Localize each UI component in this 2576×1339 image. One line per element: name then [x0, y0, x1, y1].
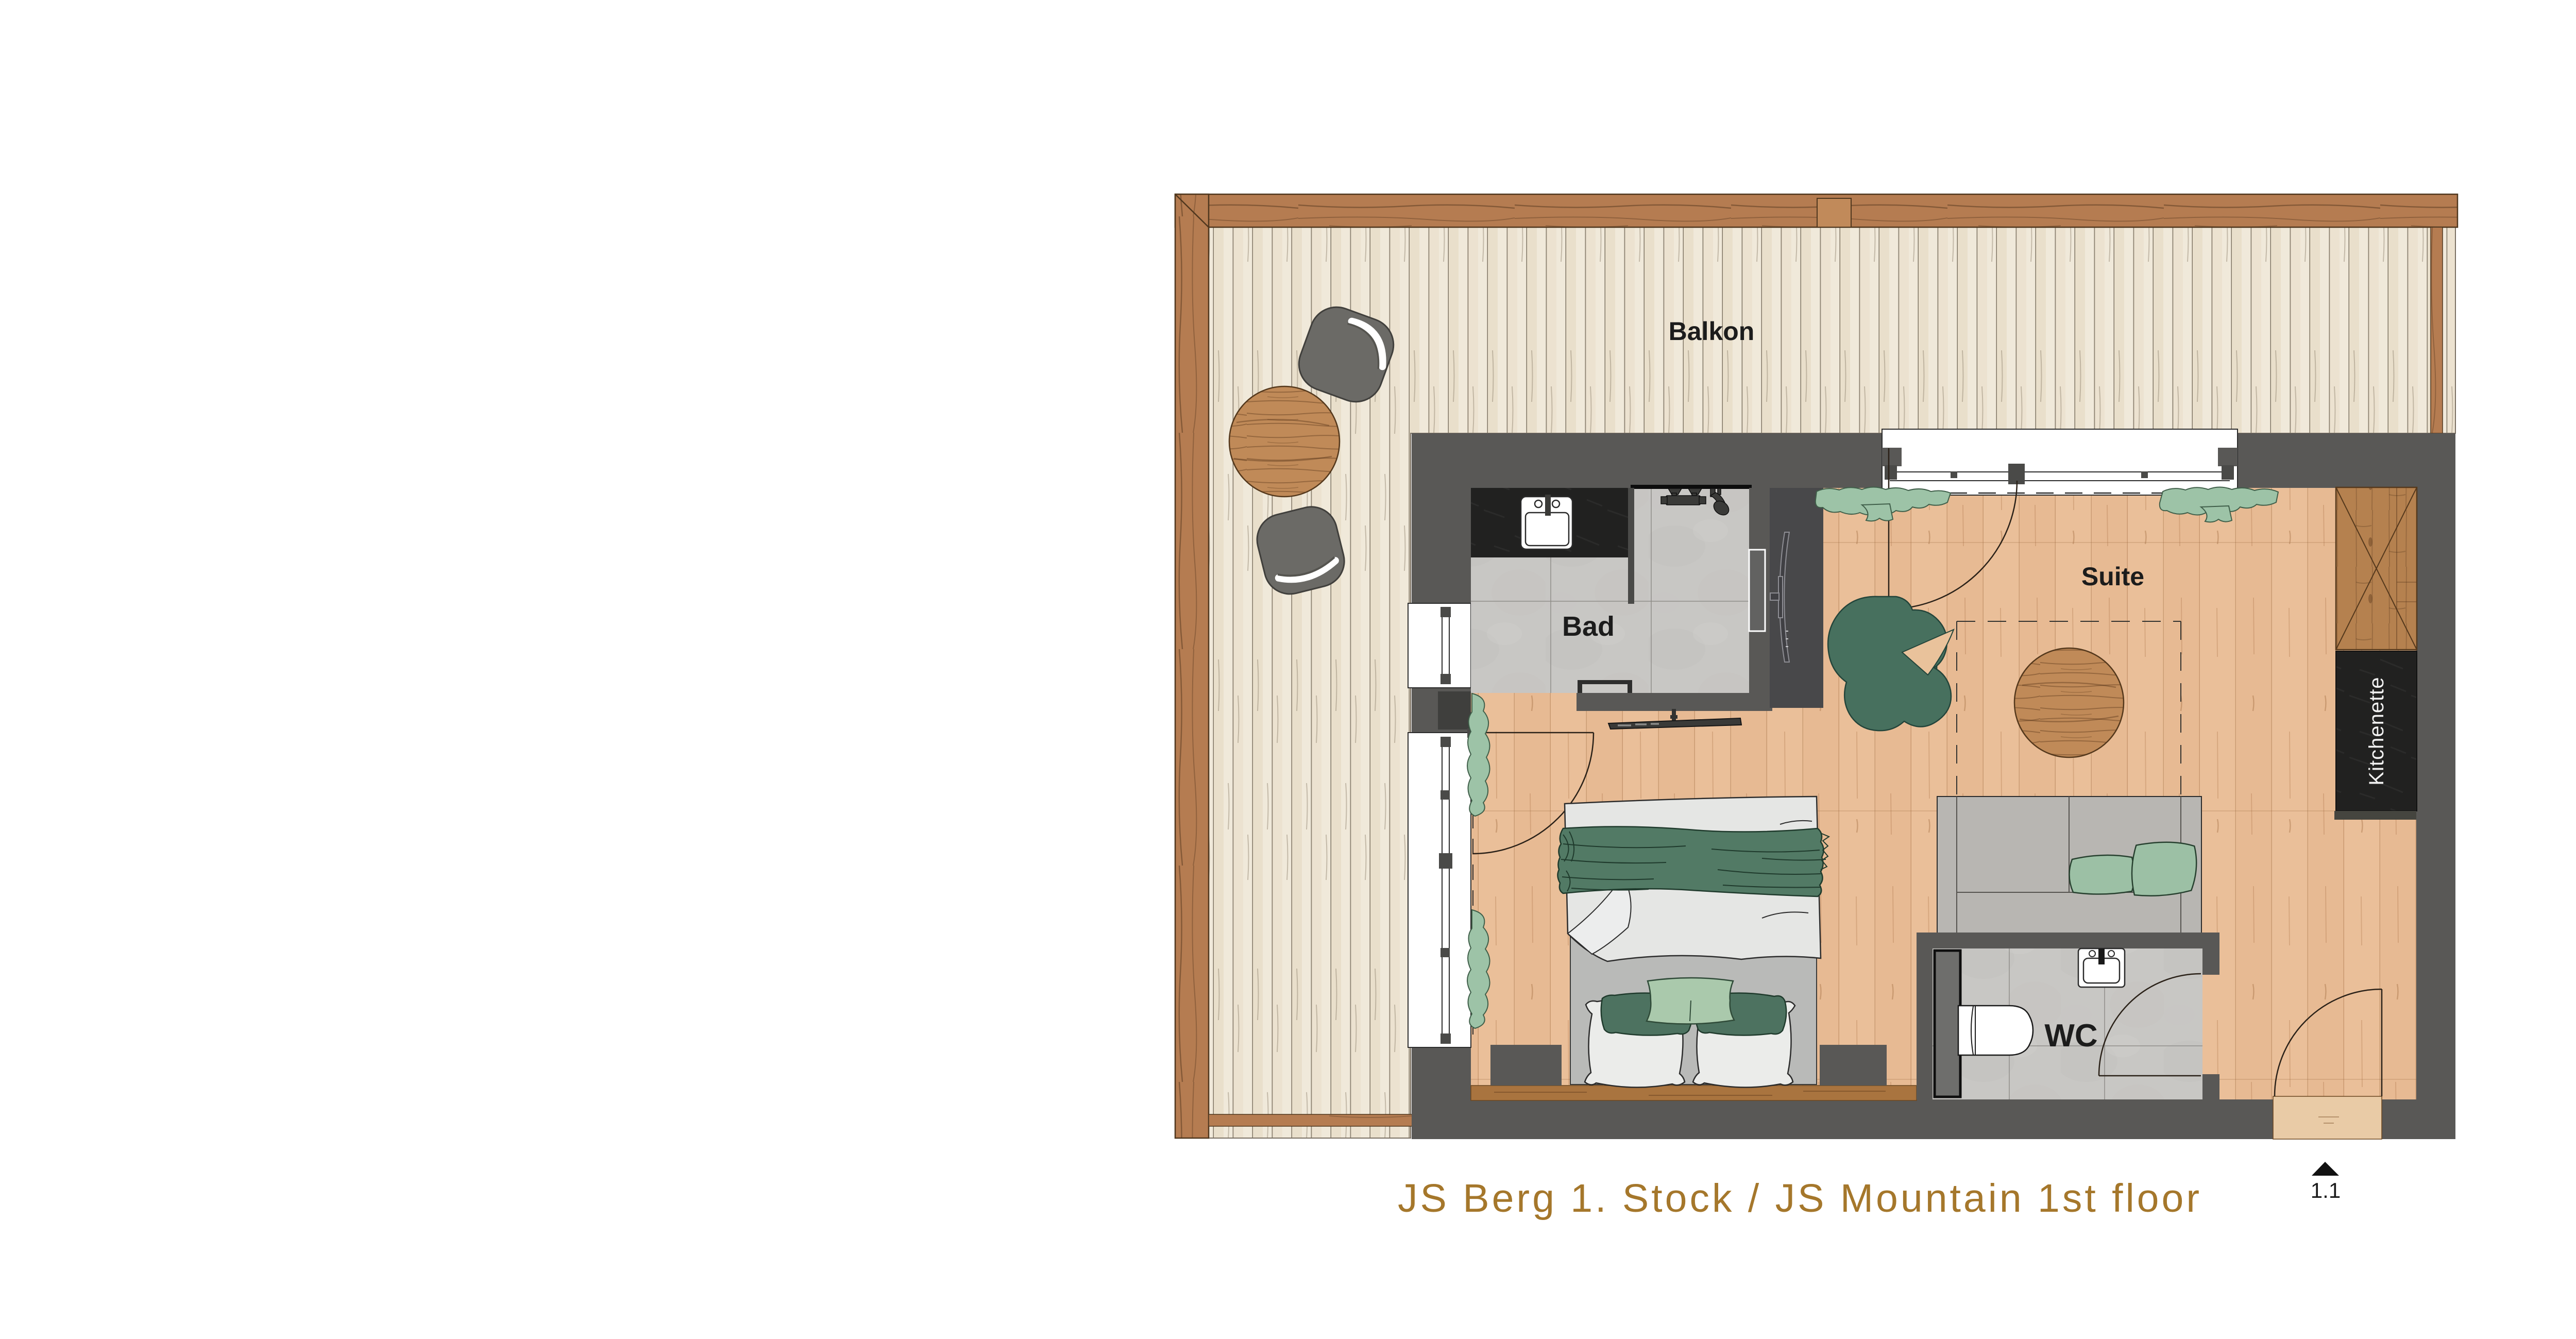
- svg-text:1.1: 1.1: [2311, 1178, 2341, 1202]
- svg-text:JS Berg 1. Stock / JS Mountain: JS Berg 1. Stock / JS Mountain 1st floor: [1398, 1176, 2202, 1221]
- svg-text:Kitchenette: Kitchenette: [2365, 676, 2388, 785]
- svg-text:Balkon: Balkon: [1669, 317, 1755, 346]
- svg-text:WC: WC: [2044, 1018, 2097, 1054]
- svg-text:Bad: Bad: [1562, 611, 1615, 642]
- svg-text:Suite: Suite: [2081, 562, 2144, 591]
